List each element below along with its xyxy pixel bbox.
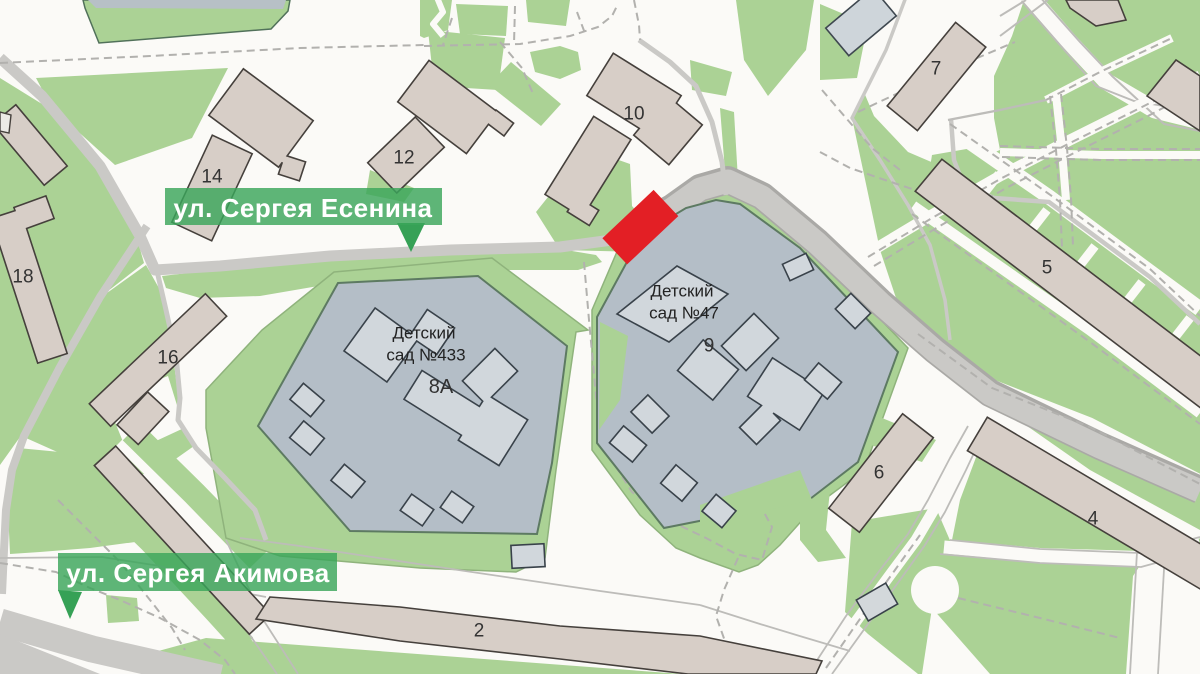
- svg-text:Детский: Детский: [651, 282, 714, 301]
- svg-text:ул. Сергея Есенина: ул. Сергея Есенина: [174, 193, 433, 223]
- svg-text:2: 2: [474, 621, 485, 642]
- svg-text:10: 10: [623, 104, 644, 125]
- svg-text:5: 5: [1042, 258, 1053, 279]
- svg-text:7: 7: [931, 59, 942, 80]
- svg-text:18: 18: [12, 267, 33, 288]
- svg-text:16: 16: [157, 348, 178, 369]
- svg-text:12: 12: [393, 148, 414, 169]
- svg-text:8А: 8А: [429, 376, 454, 398]
- svg-text:6: 6: [874, 463, 885, 484]
- svg-text:4: 4: [1088, 509, 1099, 530]
- svg-text:Детский: Детский: [393, 324, 456, 343]
- svg-text:9: 9: [704, 336, 715, 357]
- svg-text:ул. Сергея Акимова: ул. Сергея Акимова: [66, 558, 330, 588]
- svg-text:14: 14: [201, 167, 223, 188]
- svg-text:сад №47: сад №47: [649, 304, 719, 323]
- svg-text:сад №433: сад №433: [386, 346, 465, 365]
